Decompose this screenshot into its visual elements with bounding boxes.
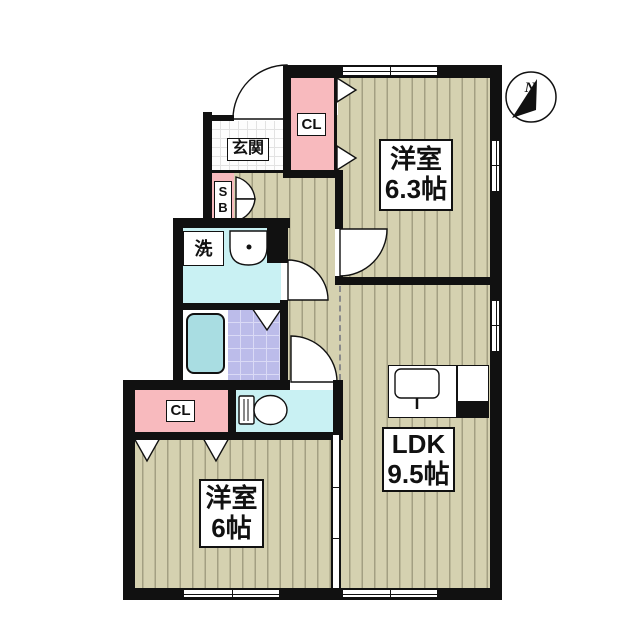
wall-segment — [123, 588, 502, 600]
closet-north-door-triangle-1 — [337, 78, 356, 102]
window-center-tick — [232, 588, 233, 599]
closet-south-door-triangle-2 — [203, 438, 229, 461]
bedroom-sw-size: 6帖 — [211, 514, 251, 544]
wall-segment — [280, 300, 288, 385]
sliding-door-tick — [333, 487, 339, 488]
wall-segment — [335, 178, 343, 229]
laundry-label: 洗 — [183, 231, 224, 266]
entrance-label: 玄関 — [227, 138, 269, 161]
closet-north-door-triangle-2 — [337, 146, 356, 170]
closet-north-label-text: CL — [302, 116, 322, 133]
window-south-ldk — [342, 589, 438, 598]
closet-south-label: CL — [166, 400, 195, 422]
window-center-tick — [390, 588, 391, 599]
bathroom-door-triangle — [252, 308, 282, 330]
toilet-door-swing — [291, 336, 337, 382]
front-door-swing — [233, 65, 287, 119]
entrance-label-text: 玄関 — [232, 140, 264, 158]
wall-segment — [333, 380, 343, 440]
wall-segment — [334, 78, 337, 170]
sliding-door — [331, 435, 341, 588]
wall-segment — [267, 222, 288, 263]
toilet-bowl — [254, 396, 287, 425]
bedroom-ne-name: 洋室 — [390, 145, 442, 175]
wall-segment — [283, 170, 343, 178]
closet-south-door-triangle-1 — [134, 438, 160, 461]
closet-north-label: CL — [297, 113, 326, 136]
washbasin-faucet-dot — [247, 245, 252, 250]
shoe-box-label-line1: S — [219, 184, 228, 200]
window-pane-line — [496, 301, 497, 351]
room-boundary-dashed-line — [339, 286, 341, 380]
wall-segment — [335, 277, 502, 285]
bedroom-ne-size: 6.3帖 — [385, 175, 447, 205]
window-east-ldk — [491, 300, 500, 352]
symbols-overlay: N — [0, 0, 640, 640]
wall-segment — [203, 115, 234, 121]
shoe-box-door-leaf-top — [236, 177, 255, 199]
bedroom-sw-label: 洋室 6帖 — [199, 479, 264, 548]
window-east-bedroom — [491, 140, 500, 192]
window-north — [342, 66, 438, 76]
washroom-door-swing — [288, 260, 328, 300]
window-pane-line — [496, 141, 497, 191]
bedroom-sw-name: 洋室 — [205, 484, 257, 514]
window-south-bedroom — [183, 589, 280, 598]
wall-segment — [203, 170, 283, 173]
wall-segment — [283, 65, 291, 178]
toilet-tank — [239, 396, 254, 424]
ldk-name: LDK — [392, 430, 445, 460]
kitchen-sink — [395, 369, 439, 398]
wall-segment — [203, 112, 212, 222]
wall-segment — [123, 382, 135, 600]
bedroom-ne-label: 洋室 6.3帖 — [379, 139, 453, 211]
wall-segment — [123, 380, 290, 390]
ldk-size: 9.5帖 — [387, 460, 449, 490]
ldk-label: LDK 9.5帖 — [382, 427, 455, 492]
shoe-box-label-line2: B — [218, 200, 227, 216]
washing-machine-circle-icon — [199, 244, 208, 253]
wall-segment — [131, 432, 343, 440]
floor-plan: N 玄 — [0, 0, 640, 640]
shoe-box-label: S B — [214, 181, 232, 219]
closet-south-label-text: CL — [171, 402, 191, 419]
window-center-tick — [390, 65, 391, 77]
compass-north-label: N — [524, 80, 537, 96]
bedroom-ne-door-swing — [340, 229, 387, 276]
wall-segment — [228, 382, 236, 438]
window-center-tick — [490, 165, 501, 166]
wall-segment — [180, 303, 283, 310]
window-center-tick — [490, 325, 501, 326]
sliding-door-tick — [333, 538, 339, 539]
